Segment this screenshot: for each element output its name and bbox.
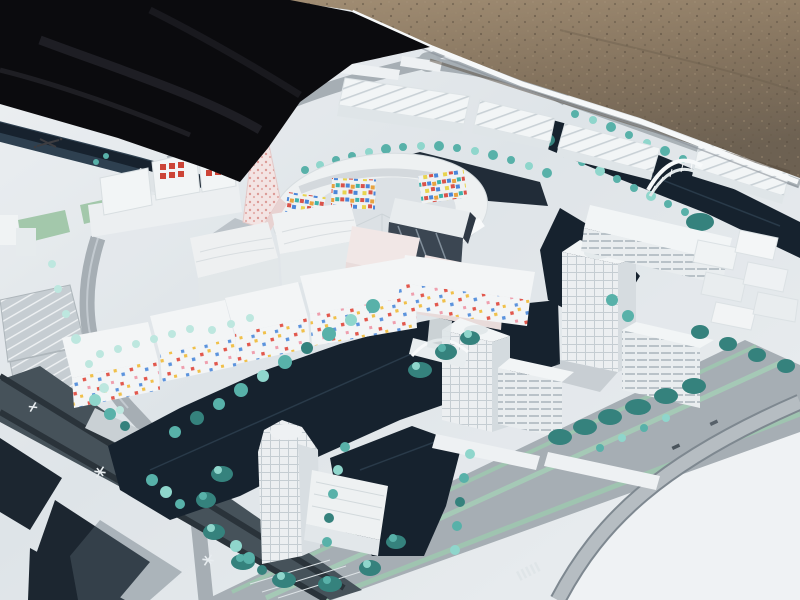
model-photograph	[0, 0, 800, 600]
